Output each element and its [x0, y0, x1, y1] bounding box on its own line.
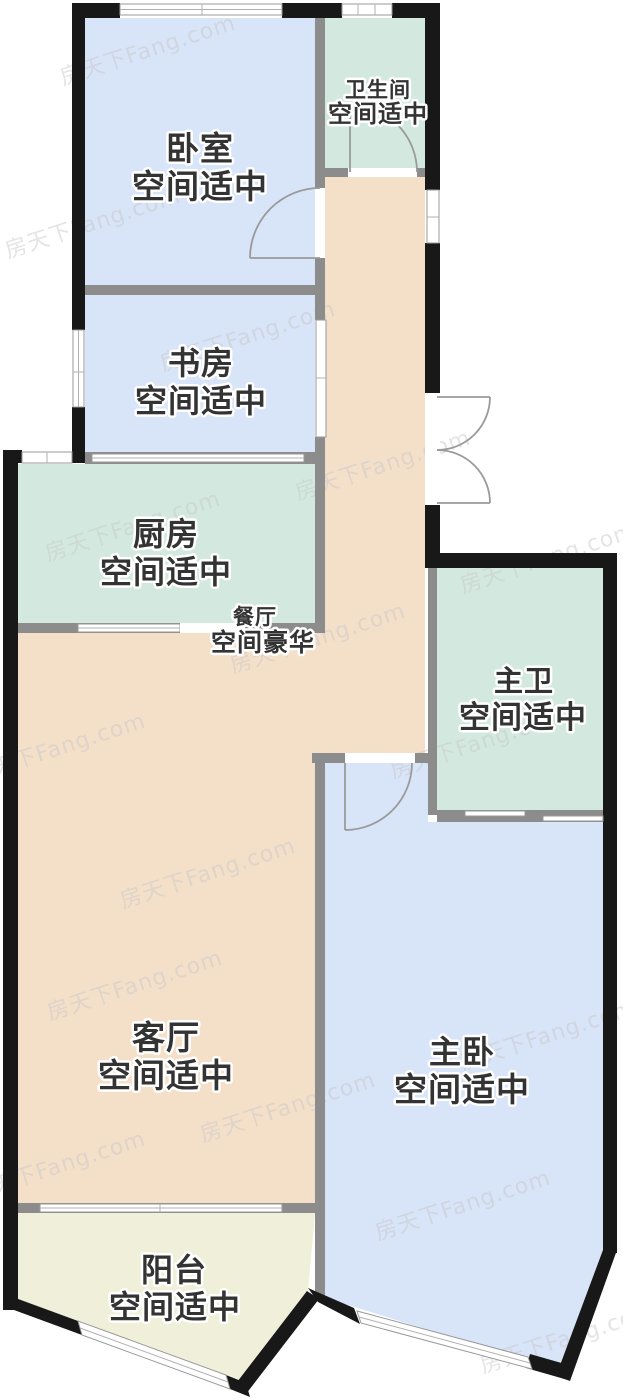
wall-segment — [72, 3, 85, 330]
wall-segment — [428, 565, 437, 815]
master-bathroom-label: 主卫 — [494, 664, 554, 698]
floorplan-image: 房天下Fang.com 房天下Fang.com 房天下Fang.com 房天下F… — [0, 0, 623, 1400]
door-opening — [348, 168, 417, 177]
wall-segment — [425, 3, 440, 190]
sliding-door-panel — [543, 816, 603, 821]
wall-segment — [425, 505, 440, 553]
door-opening — [315, 188, 325, 258]
wall-segment — [417, 168, 425, 177]
wall-segment — [3, 450, 18, 1310]
wall-segment — [425, 243, 440, 395]
wall-segment — [603, 553, 617, 1253]
wall-segment — [315, 464, 325, 633]
dining-grade: 空间豪华 — [211, 628, 315, 657]
floorplan-svg: 房天下Fang.com 房天下Fang.com 房天下Fang.com 房天下F… — [0, 0, 623, 1400]
study-grade: 空间适中 — [135, 382, 267, 420]
sliding-door-panel — [465, 811, 525, 816]
wall-segment — [325, 168, 350, 177]
master-bathroom-grade: 空间适中 — [459, 700, 587, 736]
wall-segment — [425, 553, 617, 568]
wall-segment — [282, 3, 342, 18]
living-room-label: 客厅 — [132, 1018, 200, 1057]
dining-label: 餐厅 — [233, 605, 277, 629]
bathroom-label: 卫生间 — [345, 78, 411, 102]
door-opening — [425, 393, 440, 505]
bedroom-label: 卧室 — [166, 129, 234, 168]
wall-segment — [315, 295, 325, 320]
master-bedroom-label: 主卧 — [429, 1033, 495, 1071]
kitchen-label: 厨房 — [133, 515, 199, 553]
wall-segment — [315, 763, 325, 1297]
wall-segment — [315, 18, 325, 190]
kitchen-grade: 空间适中 — [100, 553, 232, 591]
balcony-label: 阳台 — [141, 1251, 207, 1289]
balcony-grade: 空间适中 — [109, 1288, 241, 1326]
wall-segment — [72, 407, 85, 463]
master-bedroom-grade: 空间适中 — [394, 1070, 530, 1109]
study-label: 书房 — [168, 344, 234, 382]
living-room-grade: 空间适中 — [98, 1056, 234, 1095]
bathroom-grade: 空间适中 — [328, 100, 428, 128]
window — [342, 4, 392, 15]
bedroom-grade: 空间适中 — [132, 167, 268, 206]
door-opening — [345, 753, 415, 763]
wall-segment — [85, 285, 325, 295]
